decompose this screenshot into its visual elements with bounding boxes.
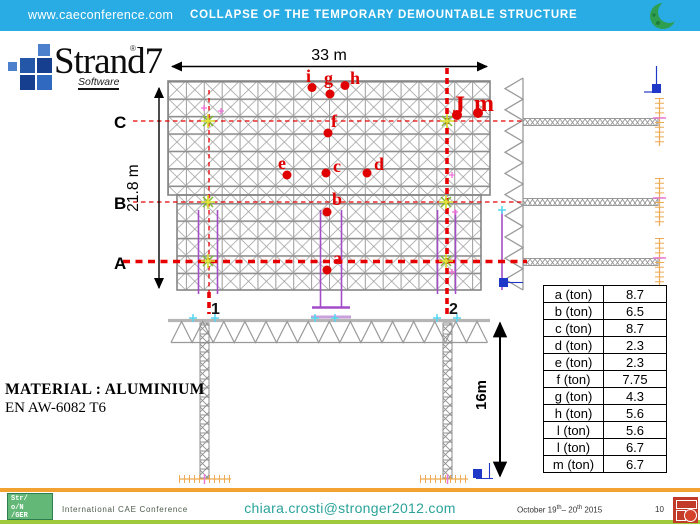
load-label: e (ton) (544, 354, 604, 371)
load-value: 6.7 (604, 439, 667, 456)
load-value: 5.6 (604, 405, 667, 422)
conference-name: International CAE Conference (62, 505, 188, 514)
top-banner: www.caeconference.com COLLAPSE OF THE TE… (0, 0, 700, 31)
point-label-h: h (350, 68, 360, 88)
load-value: 4.3 (604, 388, 667, 405)
table-row: l (ton)5.6 (544, 422, 667, 439)
load-value: 2.3 (604, 337, 667, 354)
table-row: e (ton)2.3 (544, 354, 667, 371)
point-dot-h (341, 81, 350, 90)
beam-end-supports (653, 98, 666, 286)
point-label-d: d (374, 154, 384, 174)
dim-column-label: 16m (473, 380, 490, 410)
load-label: d (ton) (544, 337, 604, 354)
right-tower-truss (505, 78, 523, 290)
table-row: a (ton)8.7 (544, 286, 667, 303)
table-row: l (ton)6.7 (544, 439, 667, 456)
load-value: 2.3 (604, 354, 667, 371)
point-label-J: J (452, 91, 465, 120)
level-label-A: A (114, 254, 126, 273)
material-line2: EN AW-6082 T6 (5, 400, 205, 417)
table-row: d (ton)2.3 (544, 337, 667, 354)
load-value: 6.7 (604, 456, 667, 473)
table-row: b (ton)6.5 (544, 303, 667, 320)
date-part: October 19 (517, 506, 557, 515)
conference-crescent-logo (646, 1, 684, 31)
load-label: a (ton) (544, 286, 604, 303)
point-dot-c (322, 169, 331, 178)
point-label-i: i (306, 66, 311, 86)
strand7-logo: Strand7 ® Software (8, 42, 158, 94)
load-value: 5.6 (604, 422, 667, 439)
point-label-f: f (331, 111, 338, 131)
material-note: MATERIAL : ALUMINIUM EN AW-6082 T6 (5, 381, 205, 417)
main-truss-grid (168, 81, 490, 290)
loads-table: a (ton)8.7 b (ton)6.5 c (ton)8.7 d (ton)… (543, 285, 667, 473)
load-label: c (ton) (544, 320, 604, 337)
stamp-detail (684, 509, 697, 522)
stronger-badge: Str/ o/N /GER (7, 493, 53, 520)
axis-icon-bottom (473, 469, 482, 478)
strand7-pixel (38, 44, 50, 56)
strand7-pixel (20, 58, 35, 73)
strand7-pixel (20, 75, 35, 90)
conference-date: October 19th– 20th 2015 (517, 505, 602, 515)
axis-label-1: 1 (211, 301, 220, 318)
node-marker-top-right (652, 84, 661, 93)
point-dot-b (323, 208, 332, 217)
load-value: 8.7 (604, 320, 667, 337)
table-row: f (ton)7.75 (544, 371, 667, 388)
load-label: f (ton) (544, 371, 604, 388)
footer-rule-orange (0, 488, 700, 492)
table-row: c (ton)8.7 (544, 320, 667, 337)
strand7-pixel (37, 58, 52, 73)
contact-email: chiara.crosti@stronger2012.com (244, 500, 456, 516)
load-label: m (ton) (544, 456, 604, 473)
level-label-C: C (114, 113, 126, 132)
badge-line: o/N (11, 504, 52, 513)
point-label-g: g (324, 68, 333, 88)
level-label-B: B (114, 194, 126, 213)
seal-stamp-logo (673, 497, 698, 523)
point-dot-g (326, 90, 335, 99)
load-label: b (ton) (544, 303, 604, 320)
point-dot-d (363, 169, 372, 178)
dim-height-label: 21.8 m (125, 164, 142, 211)
side-beams (523, 119, 658, 266)
axis-icon-tower (499, 278, 508, 287)
load-value: 8.7 (604, 286, 667, 303)
point-label-b: b (332, 189, 342, 209)
date-part: – 20 (562, 506, 578, 515)
page-number: 10 (655, 505, 664, 514)
support-columns (200, 323, 452, 478)
load-label: l (ton) (544, 439, 604, 456)
table-row: m (ton)6.7 (544, 456, 667, 473)
point-label-m: m (474, 91, 494, 117)
load-label: l (ton) (544, 422, 604, 439)
point-dot-a (323, 266, 332, 275)
slide-title: COLLAPSE OF THE TEMPORARY DEMOUNTABLE ST… (190, 9, 578, 21)
dim-width-label: 33 m (311, 47, 347, 64)
strand7-pixel (37, 75, 52, 90)
badge-line: /GER (11, 512, 52, 521)
date-part: 2015 (582, 506, 602, 515)
axis-label-2: 2 (449, 301, 458, 318)
footer-rule-green (0, 520, 700, 524)
registered-mark: ® (130, 44, 136, 53)
point-label-e: e (278, 153, 286, 173)
table-row: h (ton)5.6 (544, 405, 667, 422)
bottom-truss-beam (168, 321, 490, 343)
column-base-supports (179, 474, 468, 484)
stamp-detail (676, 500, 697, 509)
badge-line: Str/ (11, 495, 52, 504)
point-label-c: c (333, 156, 341, 176)
website-url: www.caeconference.com (28, 8, 173, 22)
strand7-pixel (8, 62, 17, 71)
load-value: 6.5 (604, 303, 667, 320)
load-value: 7.75 (604, 371, 667, 388)
material-line1: MATERIAL : ALUMINIUM (5, 381, 205, 399)
strand7-software-label: Software (78, 76, 119, 90)
point-label-a: a (333, 248, 342, 268)
table-row: g (ton)4.3 (544, 388, 667, 405)
load-label: h (ton) (544, 405, 604, 422)
load-label: g (ton) (544, 388, 604, 405)
